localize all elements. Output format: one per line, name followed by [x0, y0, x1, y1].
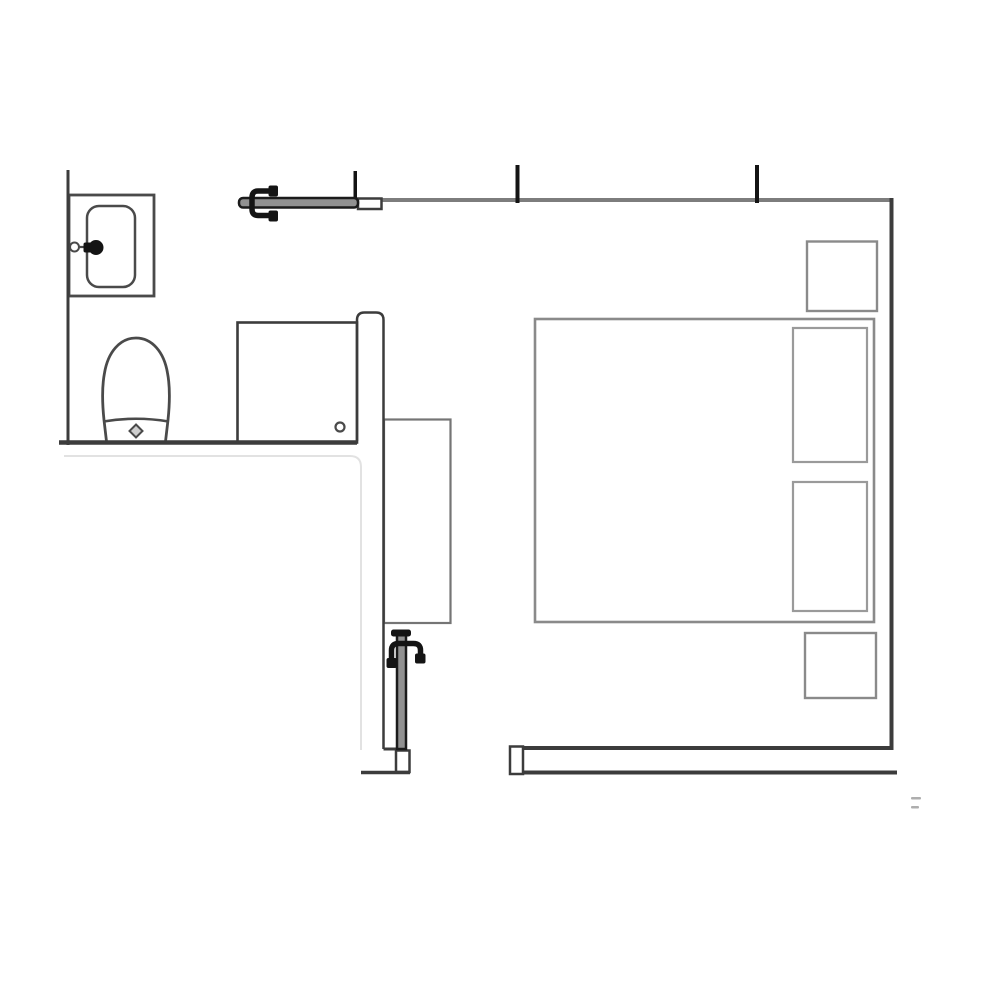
- pillow-bottom: [793, 482, 867, 611]
- bottom-wall-end-cap: [510, 747, 523, 775]
- entry-hinge-foot-top: [269, 186, 279, 197]
- interior-wall-cap: [357, 313, 384, 442]
- bathroom-door-jamb-box: [396, 751, 410, 773]
- bathroom-ghost-outline: [64, 456, 361, 750]
- entry-door-leaf: [239, 198, 358, 208]
- wall-tick-right: [755, 165, 759, 203]
- furniture-group: [384, 242, 877, 699]
- toilet-seat-line: [104, 419, 169, 422]
- bathroom-fixtures-group: [69, 195, 357, 443]
- shower-drain-icon: [336, 423, 345, 432]
- entry-hinge-foot-bottom: [269, 211, 279, 222]
- wall-ticks-group: [354, 165, 760, 203]
- bathroom-door-cap: [391, 630, 411, 637]
- floor-plan-canvas: [0, 0, 1000, 1000]
- artifact-dash-1: [911, 797, 921, 800]
- bathroom-hinge-foot-left: [387, 658, 398, 668]
- floor-plan-page: [0, 0, 1000, 1000]
- faucet-valve-icon: [70, 243, 79, 252]
- ghost-outline-group: [64, 456, 361, 750]
- nightstand-top: [807, 242, 877, 312]
- faucet-base: [84, 243, 92, 253]
- bathroom-door-leaf: [397, 634, 406, 749]
- wardrobe: [384, 420, 451, 624]
- wall-tick-middle: [516, 165, 520, 203]
- toilet-drain-icon: [130, 425, 143, 438]
- pillow-top: [793, 328, 867, 462]
- entry-door-jamb: [358, 199, 382, 210]
- bathroom-hinge-foot-right: [415, 654, 426, 664]
- artifact-dash-2: [911, 806, 919, 809]
- nightstand-bottom: [805, 633, 876, 698]
- artifact-marks-group: [911, 797, 921, 809]
